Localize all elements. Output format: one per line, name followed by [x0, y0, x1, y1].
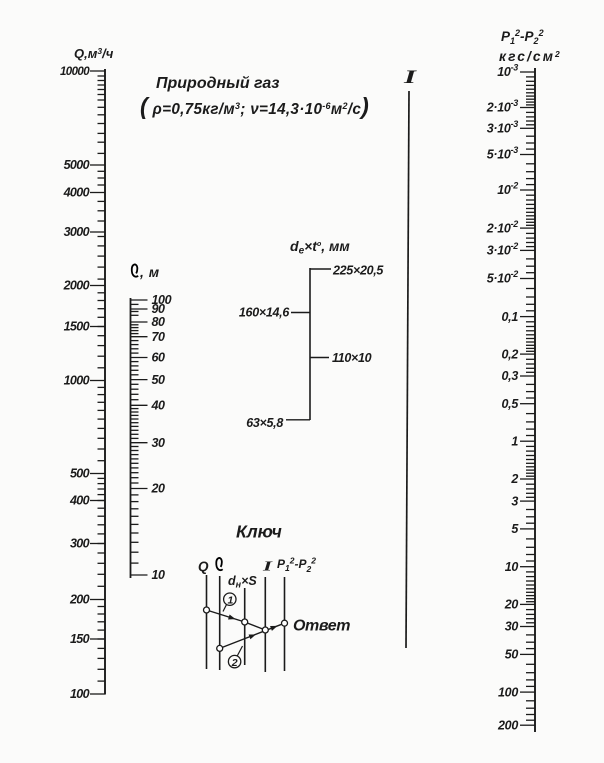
- svg-text:80: 80: [152, 315, 166, 329]
- svg-text:1500: 1500: [64, 320, 90, 334]
- svg-text:0,3: 0,3: [502, 369, 519, 383]
- svg-text:, м: , м: [139, 264, 160, 280]
- svg-text:1000: 1000: [64, 374, 90, 388]
- svg-text:160×14,6: 160×14,6: [239, 306, 290, 320]
- svg-text:I: I: [402, 67, 417, 88]
- svg-text:Ответ: Ответ: [293, 618, 350, 635]
- svg-text:2: 2: [510, 472, 518, 486]
- svg-text:63×5,8: 63×5,8: [246, 416, 283, 430]
- svg-text:100: 100: [498, 685, 518, 699]
- svg-text:2000: 2000: [63, 279, 90, 293]
- svg-text:110×10: 110×10: [332, 351, 372, 365]
- svg-text:30: 30: [505, 620, 519, 634]
- svg-text:dн×S: dн×S: [228, 574, 257, 590]
- svg-text:2: 2: [231, 657, 238, 669]
- svg-text:0,2: 0,2: [502, 347, 519, 361]
- svg-text:20: 20: [151, 482, 166, 496]
- svg-text:20: 20: [504, 598, 519, 612]
- svg-text:0,5: 0,5: [502, 397, 520, 411]
- svg-text:70: 70: [152, 330, 166, 344]
- svg-text:100: 100: [152, 293, 172, 307]
- svg-text:10: 10: [505, 560, 519, 574]
- svg-text:кгс/см2: кгс/см2: [499, 49, 562, 64]
- svg-text:100: 100: [70, 687, 90, 701]
- svg-text:50: 50: [152, 373, 166, 387]
- svg-text:0,1: 0,1: [502, 310, 519, 324]
- svg-text:Природный газ: Природный газ: [156, 75, 279, 92]
- svg-text:4000: 4000: [63, 186, 90, 200]
- svg-text:150: 150: [70, 632, 90, 646]
- svg-text:3: 3: [511, 494, 518, 508]
- svg-text:I: I: [261, 560, 273, 575]
- svg-text:1: 1: [228, 595, 234, 607]
- svg-text:5000: 5000: [64, 158, 90, 172]
- svg-text:Ключ: Ключ: [236, 522, 282, 542]
- svg-text:30: 30: [152, 436, 166, 450]
- svg-text:500: 500: [70, 467, 90, 481]
- svg-text:3000: 3000: [64, 225, 90, 239]
- svg-text:Q,м3/ч: Q,м3/ч: [74, 46, 114, 61]
- svg-text:1: 1: [511, 434, 518, 448]
- svg-text:50: 50: [505, 648, 519, 662]
- svg-text:200: 200: [69, 593, 90, 607]
- svg-text:225×20,5: 225×20,5: [332, 264, 384, 278]
- svg-text:40: 40: [151, 399, 166, 413]
- svg-text:400: 400: [69, 494, 90, 508]
- svg-text:10000: 10000: [60, 66, 90, 78]
- svg-text:200: 200: [497, 718, 518, 732]
- svg-text:10: 10: [152, 568, 166, 582]
- svg-text:Q: Q: [198, 559, 209, 574]
- svg-text:60: 60: [152, 351, 166, 365]
- svg-text:300: 300: [70, 537, 90, 551]
